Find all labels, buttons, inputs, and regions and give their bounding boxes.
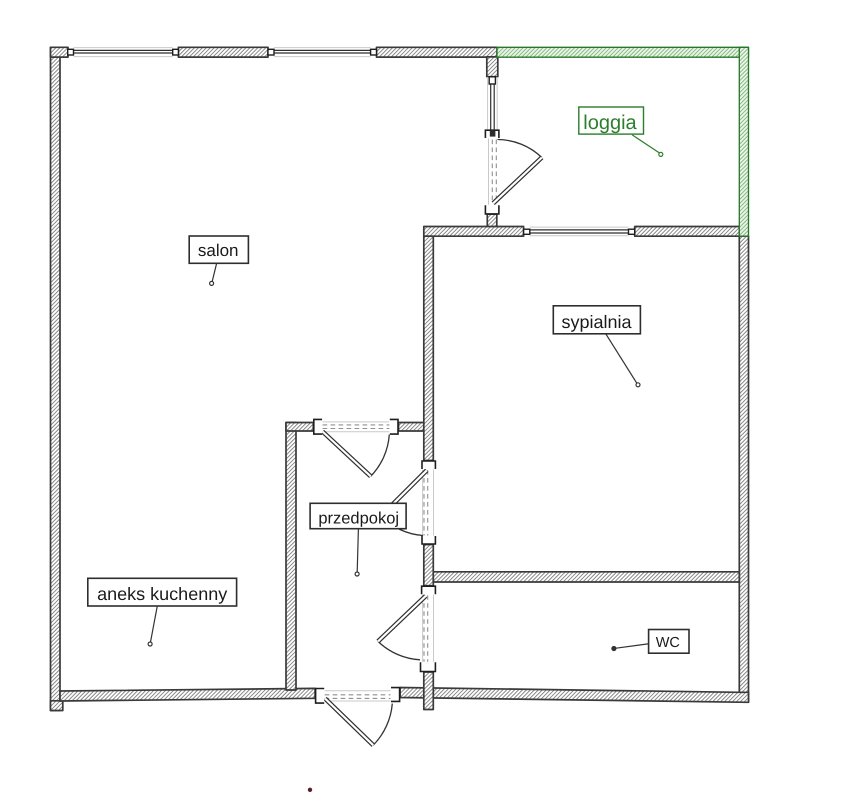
svg-text:WC: WC xyxy=(656,635,680,651)
svg-text:aneks kuchenny: aneks kuchenny xyxy=(97,584,227,604)
svg-text:salon: salon xyxy=(198,241,239,260)
svg-text:loggia: loggia xyxy=(583,112,637,134)
svg-text:sypialnia: sypialnia xyxy=(561,312,632,332)
svg-text:przedpokoj: przedpokoj xyxy=(318,510,399,528)
